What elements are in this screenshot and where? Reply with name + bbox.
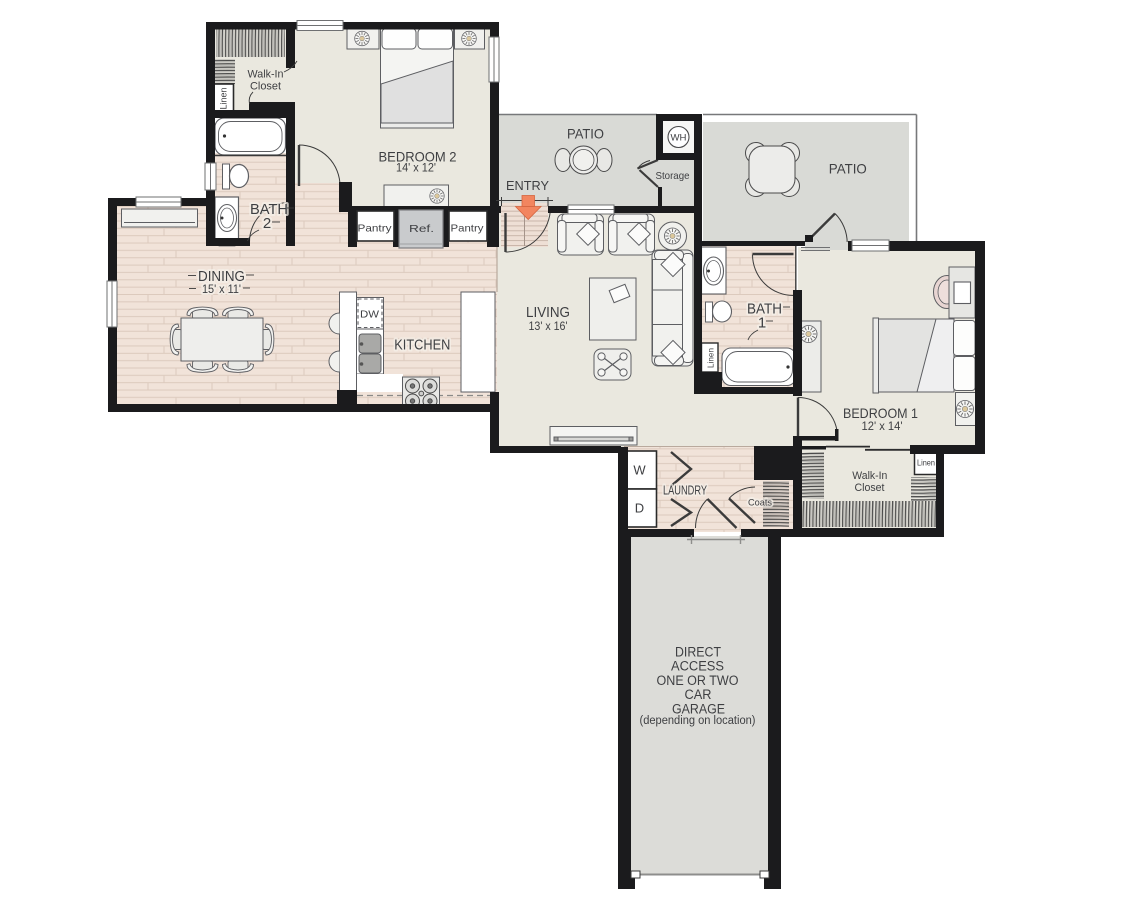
svg-text:Linen: Linen — [219, 88, 229, 110]
svg-text:W: W — [633, 463, 646, 478]
svg-text:Linen: Linen — [706, 348, 716, 368]
svg-text:Pantry: Pantry — [358, 223, 393, 235]
svg-text:DIRECT: DIRECT — [675, 645, 721, 660]
svg-text:D: D — [635, 501, 644, 516]
svg-text:PATIO: PATIO — [829, 161, 867, 177]
svg-text:KITCHEN: KITCHEN — [394, 337, 450, 354]
svg-text:Walk-In: Walk-In — [852, 470, 887, 482]
svg-text:LAUNDRY: LAUNDRY — [663, 483, 707, 498]
svg-text:ACCESS: ACCESS — [671, 659, 724, 674]
svg-text:Ref.: Ref. — [409, 223, 434, 235]
svg-text:12' x 14': 12' x 14' — [862, 419, 903, 433]
svg-text:15' x 11': 15' x 11' — [202, 282, 241, 296]
svg-text:2: 2 — [263, 215, 271, 232]
svg-text:PATIO: PATIO — [567, 126, 604, 142]
svg-text:CAR: CAR — [685, 687, 712, 702]
svg-text:DW: DW — [360, 309, 379, 321]
svg-text:Walk-In: Walk-In — [248, 69, 284, 81]
svg-text:WH: WH — [671, 133, 687, 143]
svg-text:ONE OR TWO: ONE OR TWO — [657, 673, 739, 688]
svg-text:Closet: Closet — [250, 81, 281, 93]
svg-text:Storage: Storage — [656, 170, 690, 182]
svg-text:Coats: Coats — [748, 498, 772, 509]
svg-text:(depending on location): (depending on location) — [640, 715, 756, 727]
svg-text:Linen: Linen — [917, 458, 935, 468]
svg-text:1: 1 — [758, 315, 766, 332]
svg-text:14' x 12': 14' x 12' — [396, 161, 436, 175]
svg-text:13' x 16': 13' x 16' — [529, 319, 568, 333]
svg-text:Pantry: Pantry — [451, 223, 485, 235]
svg-text:Closet: Closet — [855, 482, 885, 494]
svg-text:ENTRY: ENTRY — [506, 178, 549, 193]
